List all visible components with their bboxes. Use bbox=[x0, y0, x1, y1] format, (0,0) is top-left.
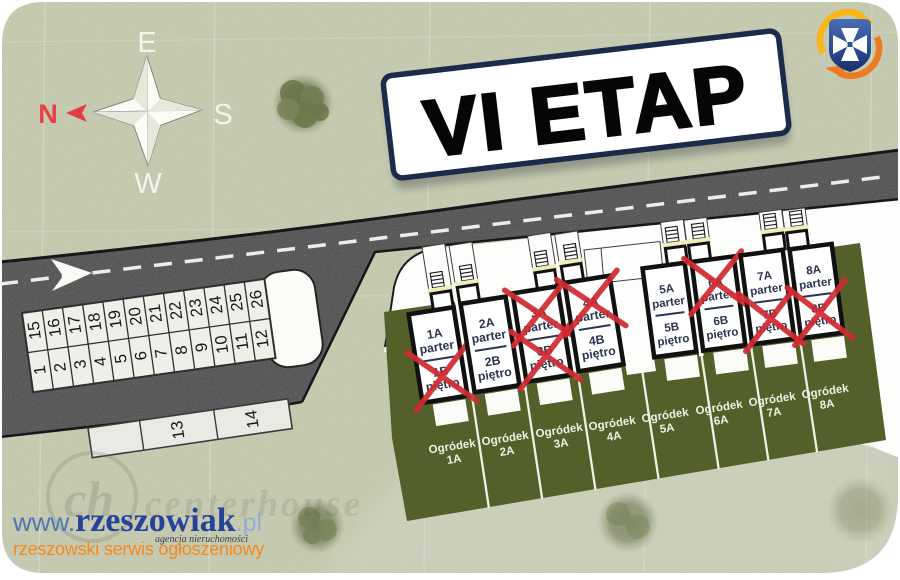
svg-text:23: 23 bbox=[186, 297, 206, 318]
svg-text:5A: 5A bbox=[658, 282, 675, 297]
svg-text:12: 12 bbox=[252, 328, 272, 349]
svg-text:8A: 8A bbox=[805, 263, 822, 278]
svg-text:26: 26 bbox=[247, 289, 267, 310]
svg-text:E: E bbox=[137, 27, 156, 59]
svg-text:16: 16 bbox=[45, 317, 65, 338]
svg-text:rzeszowski serwis ogłoszeniowy: rzeszowski serwis ogłoszeniowy bbox=[13, 539, 264, 559]
svg-text:13: 13 bbox=[168, 420, 188, 441]
svg-text:25: 25 bbox=[227, 292, 247, 313]
svg-text:24: 24 bbox=[206, 295, 226, 316]
svg-text:2A: 2A bbox=[499, 445, 515, 459]
svg-text:14: 14 bbox=[242, 409, 262, 430]
svg-text:1A: 1A bbox=[446, 453, 462, 467]
svg-text:5A: 5A bbox=[659, 422, 675, 436]
svg-text:3A: 3A bbox=[553, 437, 569, 451]
svg-text:21: 21 bbox=[146, 303, 166, 324]
svg-text:6A: 6A bbox=[713, 414, 729, 428]
svg-text:10: 10 bbox=[212, 334, 232, 355]
svg-text:8A: 8A bbox=[819, 398, 835, 412]
svg-text:18: 18 bbox=[85, 312, 105, 333]
svg-text:4A: 4A bbox=[606, 430, 622, 444]
svg-text:7A: 7A bbox=[756, 269, 773, 284]
svg-text:19: 19 bbox=[105, 309, 125, 330]
svg-text:20: 20 bbox=[126, 306, 146, 327]
svg-text:22: 22 bbox=[166, 300, 186, 321]
svg-text:11: 11 bbox=[232, 332, 252, 351]
svg-text:W: W bbox=[134, 168, 162, 200]
svg-text:N: N bbox=[38, 99, 58, 129]
svg-text:15: 15 bbox=[25, 320, 45, 341]
svg-text:17: 17 bbox=[65, 314, 85, 335]
svg-text:S: S bbox=[213, 99, 232, 131]
svg-text:7A: 7A bbox=[766, 406, 782, 420]
